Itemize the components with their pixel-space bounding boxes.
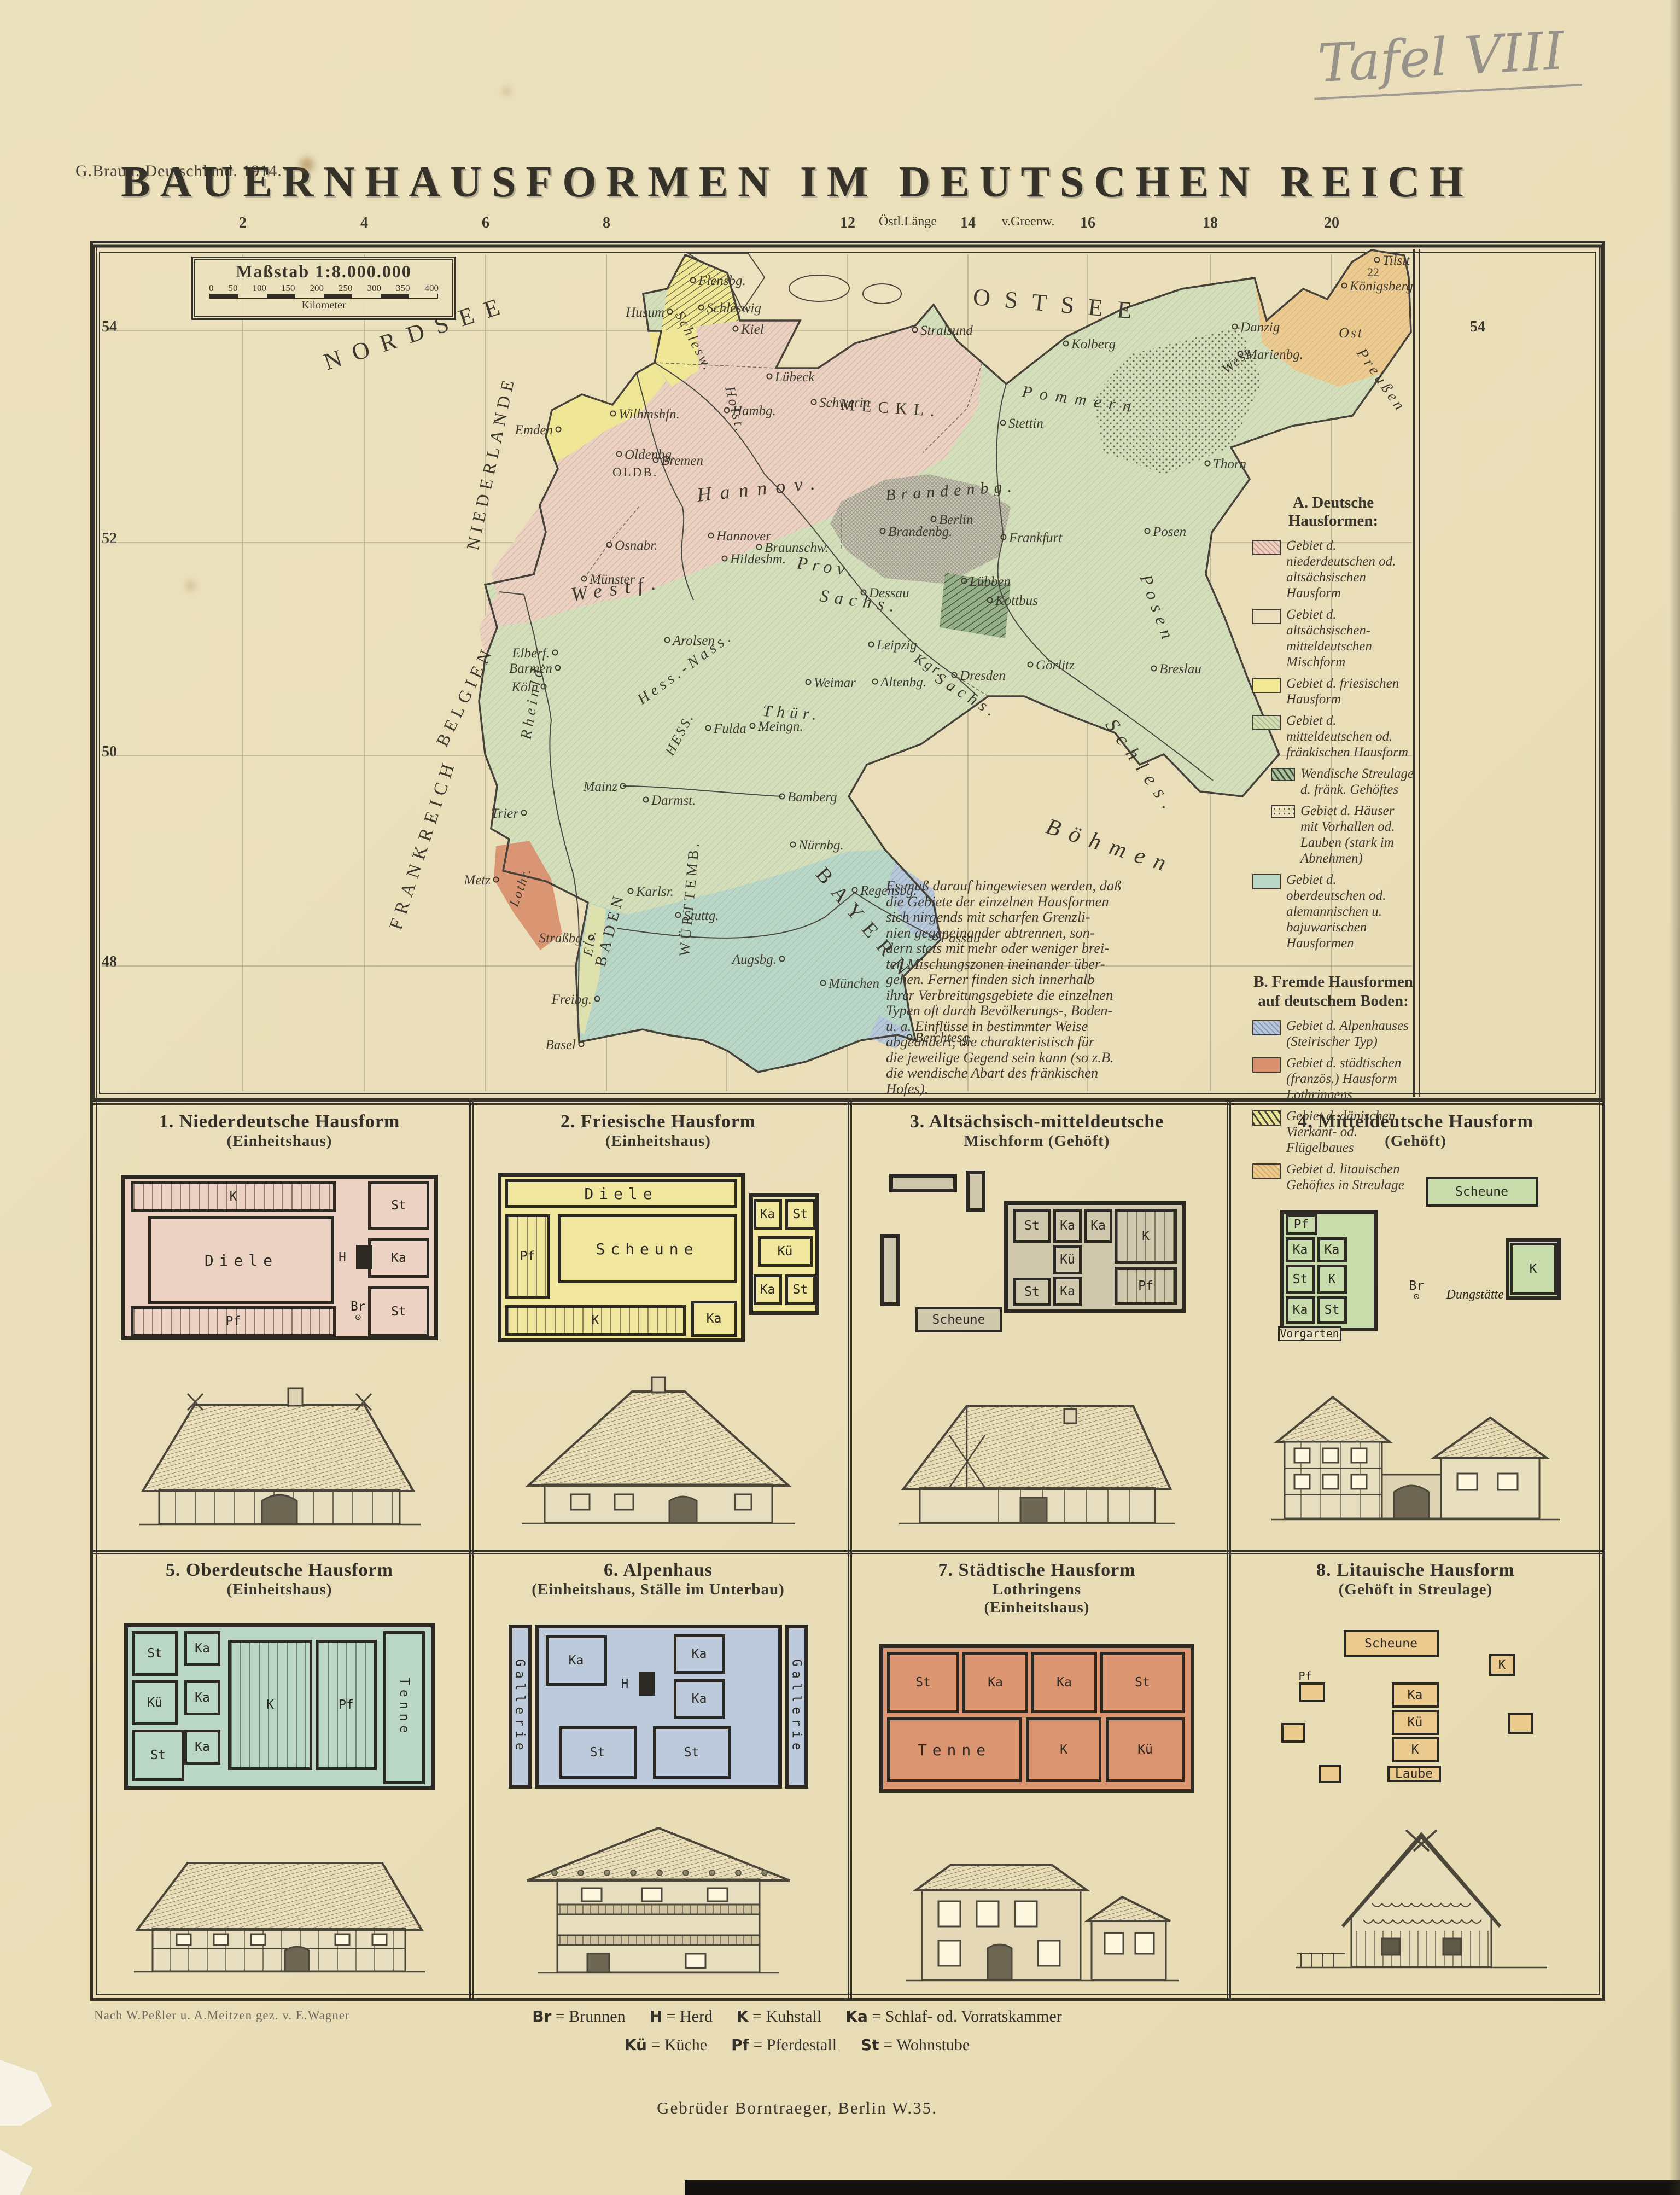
paper-edge-shadow	[1669, 0, 1680, 2195]
map-region-label: OSTSEE	[972, 283, 1147, 325]
map-region-label: Ost	[1339, 325, 1363, 341]
panel-subtitle: (Einheitshaus, Ställe im Unterbau)	[469, 1581, 848, 1599]
panel-6: 6. Alpenhaus(Einheitshaus, Ställe im Unt…	[469, 1554, 848, 1999]
house-illustration	[1263, 1359, 1569, 1539]
panel-subtitle: Mischform (Gehöft)	[848, 1132, 1226, 1150]
hearth-symbol	[356, 1245, 372, 1269]
abbreviation: H = Herd	[650, 2007, 713, 2025]
map-city-label: Marienbg.	[1245, 347, 1303, 362]
room-ka: Ka	[754, 1274, 782, 1305]
lon-label: 2	[239, 214, 247, 232]
legend-item: Gebiet d. oberdeutschen od. alemannische…	[1252, 872, 1414, 951]
legend-swatch	[1252, 609, 1281, 624]
room-pf: Pf	[316, 1640, 377, 1770]
frame-divider	[848, 1102, 852, 1999]
map-scale-box: Maßstab 1:8.000.000 05010015020025030035…	[191, 257, 456, 320]
room-kü: Kü	[1106, 1717, 1185, 1782]
legend-item: Gebiet d. Alpenhauses (Steirischer Typ)	[1252, 1018, 1414, 1050]
well: Br⊙	[1409, 1279, 1425, 1301]
abbreviation: Br = Brunnen	[532, 2007, 625, 2025]
house-drawing	[505, 1807, 812, 1990]
map-city-label: Altenbg.	[879, 675, 926, 690]
panel-5: 5. Oberdeutsche Hausform(Einheitshaus)St…	[90, 1554, 469, 1999]
legend-item: Wendische Streulage d. fränk. Gehöftes	[1271, 766, 1414, 797]
room-ka: Ka	[1286, 1296, 1315, 1324]
room-st: St	[785, 1274, 816, 1305]
legend-swatch	[1271, 768, 1295, 781]
map-city-label: Schleswig	[707, 301, 761, 316]
scan-edge-bar	[685, 2180, 1680, 2195]
panel-title: 1. Niederdeutsche Hausform	[90, 1111, 469, 1132]
abbreviation: St = Wohnstube	[861, 2036, 970, 2054]
floor-plan: StKaKaStTenneKKü	[873, 1631, 1201, 1805]
room-st: St	[368, 1286, 429, 1337]
frame-divider	[469, 1102, 474, 1999]
legend-swatch	[1252, 715, 1281, 730]
map-city-label: Kottbus	[995, 593, 1038, 608]
hearth-symbol	[639, 1672, 655, 1696]
panel-title: 4. Mitteldeutsche Hausform	[1227, 1111, 1605, 1132]
abbreviation: K = Kuhstall	[737, 2007, 821, 2025]
map-city-label: München	[828, 976, 879, 991]
map-city-label: Kolberg	[1071, 337, 1116, 352]
room-ka: Ka	[1084, 1209, 1112, 1243]
paper-stain	[503, 88, 511, 95]
lon-label: Östl.Länge	[879, 214, 937, 229]
map-city-label: Darmst.	[651, 793, 696, 808]
map-city-label: Trier	[491, 806, 518, 821]
legend-item: Gebiet d. städtischen (französ.) Hausfor…	[1252, 1055, 1414, 1103]
paper-stain	[300, 158, 314, 172]
room-gallerie: Gallerie	[785, 1625, 808, 1789]
floor-plan: KDielePfStKaStHBr⊙	[115, 1171, 444, 1344]
room-st: St	[132, 1730, 184, 1781]
panel-title: 2. Friesische Hausform	[469, 1111, 848, 1132]
room-ka: Ka	[1031, 1652, 1097, 1713]
map-city-label: Wilhmshfn.	[619, 407, 680, 422]
map-city-label: Görlitz	[1036, 658, 1075, 673]
outbuilding	[1508, 1713, 1533, 1734]
map-city-label: Kiel	[740, 322, 764, 337]
map-city-label: Berlin	[939, 513, 973, 527]
legend-item: Gebiet d. Häuser mit Vorhallen od. Laube…	[1271, 803, 1414, 866]
panel-title: 8. Litauische Hausform	[1227, 1560, 1605, 1581]
room-ka: Ka	[1317, 1237, 1347, 1262]
map-legend: A. Deutsche Hausformen: Gebiet d. nieder…	[1252, 491, 1414, 1198]
room-st: St	[785, 1199, 816, 1230]
paper-tear	[0, 2150, 33, 2195]
outbuilding	[1281, 1723, 1305, 1743]
room-tenne: Tenne	[383, 1631, 425, 1784]
legend-b-title: B. Fremde Hausformen	[1252, 973, 1414, 991]
room-ka: Ka	[184, 1680, 220, 1715]
map-city-label: Flensbg.	[698, 273, 746, 288]
room-ka: Ka	[691, 1301, 737, 1337]
panel-subtitle: Lothringens	[848, 1581, 1226, 1599]
house-illustration	[1263, 1807, 1569, 1988]
map-city-label: Meingn.	[757, 719, 803, 734]
house-illustration	[505, 1807, 812, 1988]
house-illustration	[126, 1807, 433, 1988]
svg-text:22: 22	[1367, 265, 1379, 279]
map-city-label: Bamberg	[787, 790, 837, 805]
legend-item: Gebiet d. altsächsischen-mitteldeutschen…	[1252, 607, 1414, 670]
map-region-label: Böhmen	[1043, 814, 1179, 880]
room-k: K	[1392, 1737, 1439, 1762]
abbreviation: Kü = Küche	[625, 2036, 707, 2054]
floor-plan: GallerieKaKaKaHStStGallerie	[494, 1619, 822, 1793]
house-drawing	[505, 1359, 812, 1542]
frame-divider	[1227, 1102, 1231, 1999]
room-pf: Pf	[1115, 1267, 1177, 1305]
scale-bar	[209, 294, 438, 299]
map-city-label: Tilsit	[1382, 253, 1410, 268]
legend-item-label: Wendische Streulage d. fränk. Gehöftes	[1300, 766, 1414, 797]
lon-label: 12	[840, 214, 855, 232]
floor-plan: StKüStKaKaKaKPfTenne	[115, 1619, 444, 1793]
map-city-label: Hannover	[716, 529, 771, 544]
map-city-label: Bremen	[661, 453, 703, 468]
room-ka: Ka	[674, 1679, 725, 1719]
outbuilding	[1299, 1682, 1325, 1702]
map-city-label: Stralsund	[920, 323, 973, 338]
scale-unit: Kilometer	[193, 299, 454, 312]
plan-annotation: Dungstätte	[1446, 1288, 1504, 1302]
map-city-label: Hambg.	[732, 404, 776, 418]
lon-label: 20	[1324, 214, 1339, 232]
room-ka: Ka	[754, 1199, 782, 1230]
well-symbol: ⊙	[1409, 1293, 1425, 1301]
map-city-label: Augsbg.	[731, 952, 777, 967]
map-city-label: Königsberg	[1349, 279, 1413, 294]
abbreviation-legend-line2: Kü = KüchePf = PferdestallSt = Wohnstube	[90, 2036, 1504, 2054]
map-city-label: Leipzig	[876, 638, 917, 653]
room-scheune: Scheune	[1344, 1630, 1439, 1657]
map-city-label: Osnabr.	[615, 538, 658, 553]
map-city-label: Metz	[463, 873, 491, 888]
map-region-label: FRANKREICH	[386, 756, 460, 933]
room-pf: Pf	[505, 1214, 550, 1299]
room-ka: Ka	[1286, 1237, 1315, 1262]
room-pf: Pf	[1286, 1214, 1317, 1235]
map-city-label: Arolsen	[672, 633, 715, 648]
legend-item-label: Gebiet d. städtischen (französ.) Hausfor…	[1286, 1055, 1414, 1103]
map-city-label: Stettin	[1008, 416, 1043, 431]
map-city-label: Frankfurt	[1008, 531, 1063, 545]
room-ka: Ka	[674, 1634, 725, 1674]
map-explanatory-note: Es muß darauf hingewiesen werden, daß di…	[886, 878, 1248, 1096]
well-symbol: ⊙	[351, 1314, 366, 1321]
room-k: K	[1317, 1265, 1347, 1294]
legend-b-title2: auf deutschem Boden:	[1252, 992, 1414, 1010]
room-st: St	[653, 1726, 731, 1779]
panel-8: 8. Litauische Hausform(Gehöft in Streula…	[1227, 1554, 1605, 1999]
panel-subtitle: (Gehöft)	[1227, 1132, 1605, 1150]
handwritten-plate-number: Tafel VIII	[1311, 19, 1582, 100]
map-city-label: Lübeck	[774, 370, 815, 385]
legend-swatch	[1252, 678, 1281, 693]
house-drawing	[126, 1359, 433, 1542]
legend-swatch	[1252, 874, 1281, 889]
panel-subtitle: (Einheitshaus)	[469, 1132, 848, 1150]
house-illustration	[884, 1820, 1190, 2001]
well: Br⊙	[351, 1300, 366, 1321]
panel-subtitle: (Gehöft in Streulage)	[1227, 1581, 1605, 1599]
room-scheune: Scheune	[915, 1307, 1002, 1332]
legend-swatch	[1252, 1057, 1281, 1073]
map-city-label: Barmen	[509, 661, 552, 676]
legend-swatch	[1252, 540, 1281, 555]
lon-label: 16	[1080, 214, 1095, 232]
map-city-label: Dresden	[959, 668, 1006, 683]
map-city-label: Braunschw.	[765, 540, 829, 555]
panel-4: 4. Mitteldeutsche Hausform(Gehöft)Scheun…	[1227, 1106, 1605, 1551]
map-city-label: Danzig	[1240, 320, 1280, 335]
map-city-label: Nürnbg.	[798, 838, 844, 853]
lon-label: 8	[603, 214, 610, 232]
panel-title: 6. Alpenhaus	[469, 1560, 848, 1581]
house-illustration	[884, 1359, 1190, 1539]
room-st: St	[559, 1726, 637, 1779]
panel-title: 7. Städtische Hausform	[848, 1560, 1226, 1581]
room-scheune: Scheune	[558, 1214, 737, 1283]
map-city-label: Breslau	[1159, 662, 1201, 677]
map-city-label: Emden	[515, 423, 553, 438]
room-ka: Ka	[368, 1238, 429, 1278]
room-scheune: Scheune	[1426, 1177, 1538, 1207]
legend-item: Gebiet d. mitteldeutschen od. fränkische…	[1252, 713, 1414, 760]
room-pf: Pf	[131, 1306, 336, 1337]
room-diele: Diele	[505, 1179, 737, 1208]
map-city-label: Husum	[625, 305, 664, 320]
room-k: K	[1510, 1243, 1557, 1295]
abbreviation: Ka = Schlaf- od. Vorratskammer	[845, 2007, 1062, 2025]
panel-3: 3. Altsächsisch-mitteldeutscheMischform …	[848, 1106, 1226, 1551]
house-drawing	[884, 1820, 1190, 2004]
map-city-label: Dessau	[868, 586, 909, 601]
house-illustration	[505, 1359, 812, 1539]
room-st: St	[1013, 1278, 1051, 1306]
lon-label: 6	[482, 214, 489, 232]
abbreviation: Pf = Pferdestall	[731, 2036, 837, 2054]
panel-title: 3. Altsächsisch-mitteldeutsche	[848, 1111, 1226, 1132]
room-k: K	[1489, 1654, 1515, 1676]
room-st: St	[1286, 1265, 1315, 1294]
panel-7: 7. Städtische HausformLothringens(Einhei…	[848, 1554, 1226, 1999]
panel-2: 2. Friesische Hausform(Einheitshaus)Diel…	[469, 1106, 848, 1551]
map-city-label: Stuttg.	[684, 909, 719, 923]
room-vorgarten: Vorgarten	[1278, 1326, 1341, 1341]
lon-label: 14	[960, 214, 976, 232]
room-st: St	[1013, 1209, 1051, 1243]
room-kü: Kü	[132, 1680, 178, 1725]
plan-building	[880, 1234, 900, 1306]
legend-item-label: Gebiet d. altsächsischen-mitteldeutschen…	[1286, 607, 1414, 670]
house-drawing	[1263, 1807, 1569, 1990]
floor-plan: DielePfScheuneKKaKaStKüKaSt	[494, 1171, 822, 1344]
map-city-label: Lübben	[969, 574, 1011, 589]
panel-subtitle2: (Einheitshaus)	[848, 1599, 1226, 1617]
room-st: St	[368, 1181, 429, 1230]
room-kü: Kü	[1392, 1710, 1439, 1735]
room-kü: Kü	[758, 1236, 813, 1267]
scale-ticks: 050100150200250300350400	[209, 283, 439, 294]
abbreviation-legend-line1: Br = BrunnenH = HerdK = KuhstallKa = Sch…	[90, 2007, 1504, 2026]
floor-plan: ScheunePfKaKaStKKaStKBr⊙DungstätteVorgar…	[1252, 1171, 1580, 1344]
legend-item-label: Gebiet d. mitteldeutschen od. fränkische…	[1286, 713, 1414, 760]
map-city-label: Fulda	[713, 721, 746, 736]
map-city-label: Straßbg.	[539, 931, 586, 946]
panel-subtitle: (Einheitshaus)	[90, 1581, 469, 1599]
map-city-label: Weimar	[814, 676, 856, 690]
house-illustration	[126, 1359, 433, 1539]
room-label: H	[621, 1677, 629, 1691]
room-label: Pf	[1299, 1669, 1312, 1682]
lon-label: 18	[1203, 214, 1218, 232]
legend-a-title: A. Deutsche Hausformen:	[1252, 494, 1414, 530]
legend-item-label: Gebiet d. Alpenhauses (Steirischer Typ)	[1286, 1018, 1414, 1050]
map-region-label: OLDB.	[612, 465, 658, 479]
map-city-label: Köln	[511, 680, 538, 695]
outbuilding	[1319, 1765, 1341, 1783]
room-st: St	[132, 1631, 178, 1676]
room-k: K	[131, 1181, 336, 1212]
house-drawing	[126, 1807, 433, 1990]
scale-title: Maßstab 1:8.000.000	[193, 261, 454, 282]
legend-item: Gebiet d. friesischen Hausform	[1252, 676, 1414, 707]
floor-plan: ScheunePfKKaKüKLaube	[1252, 1619, 1580, 1793]
room-ka: Ka	[1392, 1682, 1439, 1708]
house-drawing	[884, 1359, 1190, 1542]
panel-subtitle: (Einheitshaus)	[90, 1132, 469, 1150]
lon-label: v.Greenw.	[1002, 214, 1055, 229]
map-city-label: Mainz	[583, 779, 618, 794]
legend-item-label: Gebiet d. oberdeutschen od. alemannische…	[1286, 872, 1414, 951]
room-tenne: Tenne	[887, 1717, 1022, 1782]
floor-plan: StKaKaKKüStKaPfScheune	[873, 1171, 1201, 1344]
room-kü: Kü	[1053, 1245, 1082, 1274]
plan-building	[889, 1174, 957, 1192]
room-ka: Ka	[1053, 1209, 1082, 1243]
house-drawing	[1263, 1359, 1569, 1542]
room-ka: Ka	[184, 1631, 220, 1666]
room-ka: Ka	[1053, 1277, 1082, 1306]
legend-item-label: Gebiet d. Häuser mit Vorhallen od. Laube…	[1300, 803, 1414, 866]
map-city-label: Posen	[1152, 525, 1186, 539]
room-st: St	[1317, 1296, 1347, 1324]
map-city-label: Freibg.	[551, 992, 592, 1007]
room-k: K	[228, 1640, 312, 1770]
room-gallerie: Gallerie	[509, 1625, 532, 1789]
map-city-label: Thorn	[1213, 457, 1246, 471]
room-ka: Ka	[184, 1730, 220, 1765]
room-k: K	[1115, 1209, 1177, 1264]
room-ka: Ka	[546, 1635, 607, 1686]
room-st: St	[887, 1652, 959, 1713]
map-city-label: Karlsr.	[635, 884, 674, 899]
map-city-label: Münster	[589, 572, 635, 587]
longitude-axis: 246812Östl.Länge14v.Greenw.161820	[92, 214, 1415, 236]
room-laube: Laube	[1387, 1766, 1441, 1782]
map-city-label: Basel	[545, 1038, 576, 1052]
room-ka: Ka	[962, 1652, 1028, 1713]
legend-swatch	[1252, 1020, 1281, 1035]
room-label: H	[339, 1250, 346, 1265]
legend-a-items: Gebiet d. niederdeutschen od. altsächsis…	[1252, 538, 1414, 951]
map-city-label: Elberf.	[511, 646, 550, 661]
map-city-label: Schwerin	[819, 395, 870, 410]
legend-item: Gebiet d. niederdeutschen od. altsächsis…	[1252, 538, 1414, 601]
publisher: Gebrüder Borntraeger, Berlin W.35.	[90, 2098, 1504, 2118]
legend-item-label: Gebiet d. friesischen Hausform	[1286, 676, 1414, 707]
map: NORDSEEOSTSEENIEDERLANDEBELGIENFRANKREIC…	[92, 244, 1603, 1101]
panel-title: 5. Oberdeutsche Hausform	[90, 1560, 469, 1581]
panel-1: 1. Niederdeutsche Hausform(Einheitshaus)…	[90, 1106, 469, 1551]
room-k: K	[1026, 1717, 1101, 1782]
paper-stain	[186, 581, 196, 591]
plan-building	[966, 1171, 985, 1212]
lon-label: 4	[360, 214, 368, 232]
paper-tear	[0, 2060, 52, 2126]
room-st: St	[1100, 1652, 1185, 1713]
map-region-label: NIEDERLANDE	[463, 374, 519, 551]
room-k: K	[505, 1305, 686, 1336]
legend-item-label: Gebiet d. niederdeutschen od. altsächsis…	[1286, 538, 1414, 601]
room-diele: Diele	[148, 1216, 334, 1304]
legend-swatch	[1271, 805, 1295, 818]
